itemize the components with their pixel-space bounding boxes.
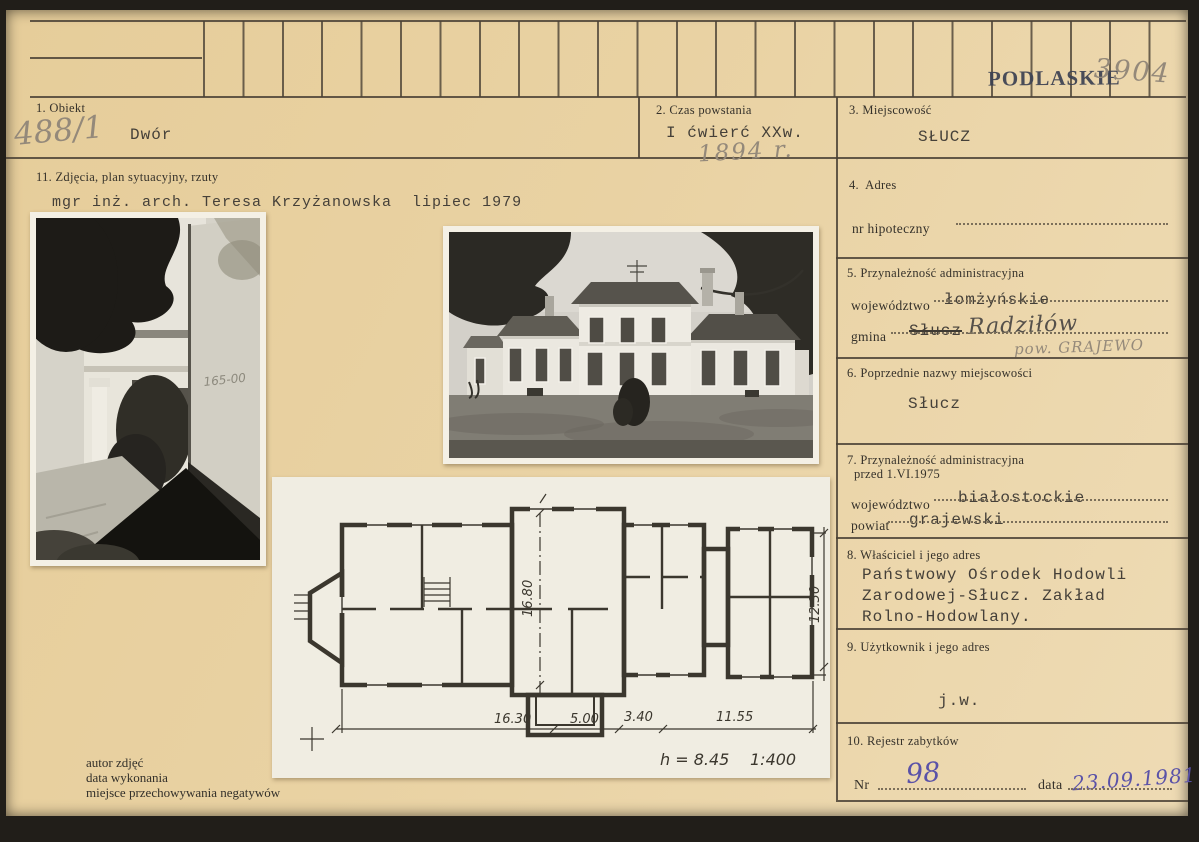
field-uzytkownik-label: 9. Użytkownik i jego adres — [847, 640, 990, 655]
divider-s7-s8 — [836, 537, 1188, 539]
header-bottom-rule — [30, 96, 1186, 98]
field-adres-fill-line — [956, 223, 1168, 225]
field-przynaleznosc1975-label: 7. Przynależność administracyjna — [847, 453, 1024, 468]
field-rejestr-data-label: data — [1038, 778, 1063, 794]
field-wlasciciel-line1: Państwowy Ośrodek Hodowli — [862, 566, 1127, 584]
row1-bottom-rule — [6, 157, 1188, 159]
plan-dim-inner-width: 16.80 — [521, 580, 536, 617]
field-zdjecia-label: 11. Zdjęcia, plan sytuacyjny, rzuty — [36, 170, 218, 185]
field-wojewodztwo-label: województwo — [851, 298, 930, 314]
floor-plan-drawing: 16.80 12.30 16.30 5.00 3.40 11.55 h = 8.… — [272, 477, 830, 777]
plan-scale-note: 1:400 — [750, 750, 796, 769]
photo-front-elevation-image — [449, 232, 813, 458]
footer-line-date: data wykonania — [86, 770, 280, 785]
field-czas-label: 2. Czas powstania — [656, 103, 752, 118]
plan-dim-b1: 16.30 — [494, 712, 531, 727]
field-wojewodztwo1975-fill-line — [934, 499, 1168, 501]
field-rejestr-label: 10. Rejestr zabytków — [847, 734, 959, 749]
field-poprzednie-value: Słucz — [908, 395, 961, 413]
scanned-record-card-page: { "colors": { "card_bg": "#e9d2a3", "lin… — [0, 0, 1199, 842]
photo-side-view: 165-00 — [30, 212, 266, 566]
plan-dim-b4: 11.55 — [716, 710, 753, 725]
field-adres-label: 4. Adres — [849, 178, 897, 193]
field-rejestr-data-value: 23.09.1981 — [1071, 763, 1197, 796]
photo-front-elevation — [443, 226, 819, 464]
field-powiat1975-label: powiat — [851, 518, 890, 534]
inventory-number-handwritten: 488/1 — [13, 109, 105, 153]
field-wojewodztwo1975-value: białostockie — [958, 489, 1085, 507]
field-gmina-handwritten-value: Radziłów — [968, 311, 1079, 340]
field-wojewodztwo-fill-line — [934, 300, 1168, 302]
plan-dim-right-height: 12.30 — [808, 586, 823, 623]
header-left-short-rule — [30, 57, 202, 59]
field-rejestr-nr-fill-line — [878, 788, 1026, 790]
divider-s5-s6 — [836, 357, 1188, 359]
field-przynaleznosc1975-label2: przed 1.VI.1975 — [854, 467, 940, 482]
field-obiekt-value: Dwór — [130, 126, 172, 144]
divider-s9-s10 — [836, 722, 1188, 724]
field-rejestr-nr-value: 98 — [905, 757, 941, 790]
divider-s6-s7 — [836, 443, 1188, 445]
plan-dim-b2: 5.00 — [570, 712, 599, 727]
field-wlasciciel-line3: Rolno-Hodowlany. — [862, 608, 1032, 626]
footer-notes: autor zdjęć data wykonania miejsce przec… — [86, 755, 280, 800]
divider-s4-s5 — [836, 257, 1188, 259]
field-gmina-fill-line — [891, 332, 1168, 334]
field-powiat1975-fill-line — [888, 521, 1168, 523]
field-rejestr-nr-label: Nr — [854, 778, 869, 794]
field-powiat1975-value: grajewski — [909, 511, 1004, 529]
field-miejscowosc-value: SŁUCZ — [918, 128, 971, 146]
right-column-bottom-rule — [836, 800, 1188, 802]
divider-s8-s9 — [836, 628, 1188, 630]
field-wlasciciel-label: 8. Właściciel i jego adres — [847, 548, 981, 563]
field-adres-sublabel: nr hipoteczny — [852, 221, 930, 237]
field-uzytkownik-value: j.w. — [938, 692, 980, 710]
photo-side-view-image: 165-00 — [36, 218, 260, 560]
plan-dim-b3: 3.40 — [624, 710, 653, 725]
field-gmina-crossed-value: Słucz — [909, 322, 962, 340]
plan-height-note: h = 8.45 — [660, 750, 729, 769]
footer-line-author: autor zdjęć — [86, 755, 280, 770]
floor-plan-sheet: 16.80 12.30 16.30 5.00 3.40 11.55 h = 8.… — [272, 477, 830, 778]
field-zdjecia-author: mgr inż. arch. Teresa Krzyżanowska lipie… — [52, 194, 522, 211]
field-miejscowosc-label: 3. Miejscowość — [849, 103, 932, 118]
field-wlasciciel-line2: Zarodowej-Słucz. Zakład — [862, 587, 1106, 605]
field-rejestr-data-fill-line — [1068, 788, 1172, 790]
record-card: PODLASKIE 3904 1. Obiekt Dwór 488/1 2. C… — [6, 10, 1188, 816]
stamp-number-handwritten: 3904 — [1093, 53, 1172, 89]
footer-line-negatives: miejsce przechowywania negatywów — [86, 785, 280, 800]
field-przynaleznosc-label: 5. Przynależność administracyjna — [847, 266, 1024, 281]
field-gmina-label: gmina — [851, 329, 886, 345]
field-czas-handwritten-date: 1894 r. — [697, 137, 794, 168]
field-powiat-handwritten-note: pow. GRAJEWO — [1014, 336, 1145, 359]
divider-main-right-column — [836, 97, 838, 800]
field-poprzednie-label: 6. Poprzednie nazwy miejscowości — [847, 366, 1032, 381]
divider-col1-col2 — [638, 97, 640, 158]
